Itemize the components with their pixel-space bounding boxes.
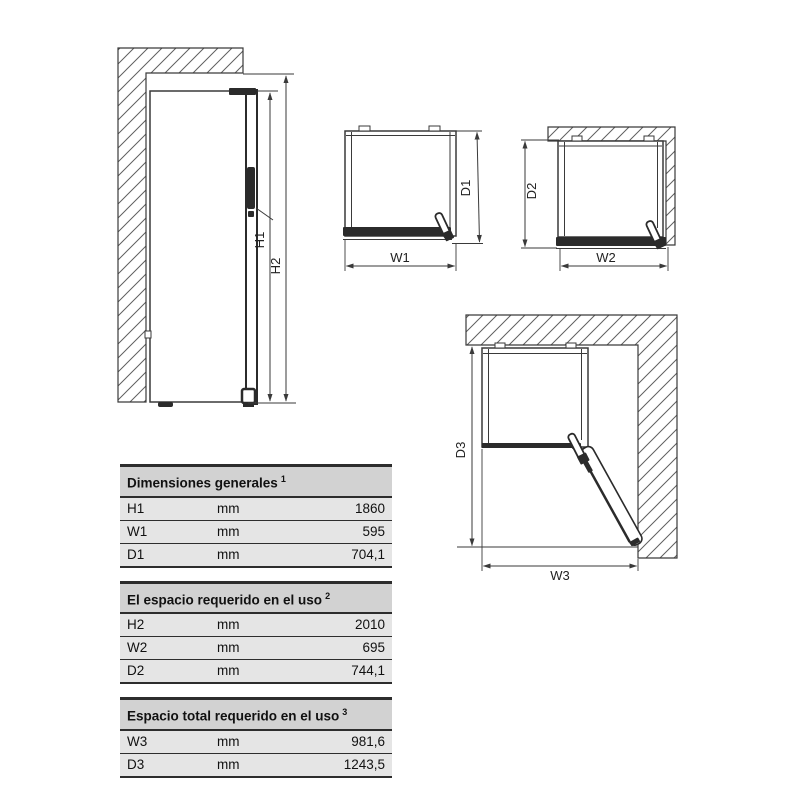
- dim-code: W1: [127, 524, 217, 540]
- side-view: H1 H2: [118, 48, 296, 407]
- top-view-free: W1 D1: [343, 126, 483, 271]
- dim-label-d3: D3: [453, 442, 468, 459]
- table-title-footnote: 3: [342, 707, 347, 717]
- handle-end-cap: [248, 211, 254, 217]
- cabinet-front-bar: [482, 443, 574, 448]
- hinge-tab-left: [495, 343, 505, 348]
- top-view-niche: D2 W2: [521, 127, 675, 271]
- hinge-tab-right: [644, 136, 654, 141]
- dim-label-w1: W1: [390, 250, 410, 265]
- dim-code: D1: [127, 547, 217, 563]
- dim-label-w2: W2: [596, 250, 616, 265]
- dim-code: D2: [127, 663, 217, 679]
- hinge-tab-right: [429, 126, 440, 131]
- dim-value: 695: [362, 640, 385, 656]
- door-handle-icon: [247, 167, 255, 209]
- table-row: D1 mm 704,1: [120, 543, 392, 566]
- table-title-text: El espacio requerido en el uso: [127, 592, 322, 607]
- cabinet-outline: [482, 348, 588, 447]
- dim-value: 704,1: [351, 547, 385, 563]
- table-title-text: Espacio total requerido en el uso: [127, 709, 339, 724]
- front-foot: [158, 402, 173, 407]
- dimension-tables: Dimensiones generales1 H1 mm 1860 W1 mm …: [120, 464, 392, 778]
- dim-unit: mm: [217, 640, 362, 656]
- table-total-space-in-use: Espacio total requerido en el uso3 W3 mm…: [120, 697, 392, 778]
- dim-unit: mm: [217, 663, 351, 679]
- dim-value: 744,1: [351, 663, 385, 679]
- dim-label-h1: H1: [252, 232, 267, 249]
- hinge-tab-left: [359, 126, 370, 131]
- dim-label-w3: W3: [550, 568, 570, 583]
- door-bottom-cap: [243, 403, 254, 407]
- table-row: D2 mm 744,1: [120, 659, 392, 682]
- dim-unit: mm: [217, 757, 344, 773]
- dim-code: W3: [127, 734, 217, 750]
- dim-label-h2: H2: [268, 258, 283, 275]
- dim-unit: mm: [217, 524, 362, 540]
- top-view-door-open: D3 W3: [453, 315, 677, 583]
- table-row: W1 mm 595: [120, 520, 392, 543]
- table-row: W2 mm 695: [120, 636, 392, 659]
- door-bar: [343, 227, 451, 236]
- dim-unit: mm: [217, 617, 355, 633]
- table-title-footnote: 1: [281, 474, 286, 484]
- door-bottom-bracket: [242, 389, 255, 403]
- door-bar: [556, 237, 666, 246]
- dim-value: 1243,5: [344, 757, 385, 773]
- dim-value: 2010: [355, 617, 385, 633]
- dim-value: 981,6: [351, 734, 385, 750]
- dim-unit: mm: [217, 734, 351, 750]
- dim-unit: mm: [217, 501, 355, 517]
- dim-value: 1860: [355, 501, 385, 517]
- fridge-body: [150, 91, 246, 402]
- dim-value: 595: [362, 524, 385, 540]
- dim-label-d2: D2: [524, 183, 539, 200]
- dim-label-d1: D1: [458, 180, 473, 197]
- dim-code: D3: [127, 757, 217, 773]
- dim-code: H1: [127, 501, 217, 517]
- hinge-tab-right: [566, 343, 576, 348]
- table-row: W3 mm 981,6: [120, 731, 392, 753]
- table-general-dimensions: Dimensiones generales1 H1 mm 1860 W1 mm …: [120, 464, 392, 568]
- table-title-footnote: 2: [325, 591, 330, 601]
- table-title: Espacio total requerido en el uso3: [120, 700, 392, 731]
- table-row: H2 mm 2010: [120, 614, 392, 636]
- table-row: H1 mm 1860: [120, 498, 392, 520]
- table-title-text: Dimensiones generales: [127, 476, 278, 491]
- dim-code: W2: [127, 640, 217, 656]
- dim-unit: mm: [217, 547, 351, 563]
- rear-spacer: [145, 331, 151, 338]
- d1-dimension-line: [477, 133, 480, 243]
- dim-code: H2: [127, 617, 217, 633]
- table-space-in-use: El espacio requerido en el uso2 H2 mm 20…: [120, 581, 392, 685]
- door-top-hinge: [229, 88, 256, 95]
- table-row: D3 mm 1243,5: [120, 753, 392, 776]
- table-title: El espacio requerido en el uso2: [120, 584, 392, 615]
- table-title: Dimensiones generales1: [120, 467, 392, 498]
- hinge-tab-left: [572, 136, 582, 141]
